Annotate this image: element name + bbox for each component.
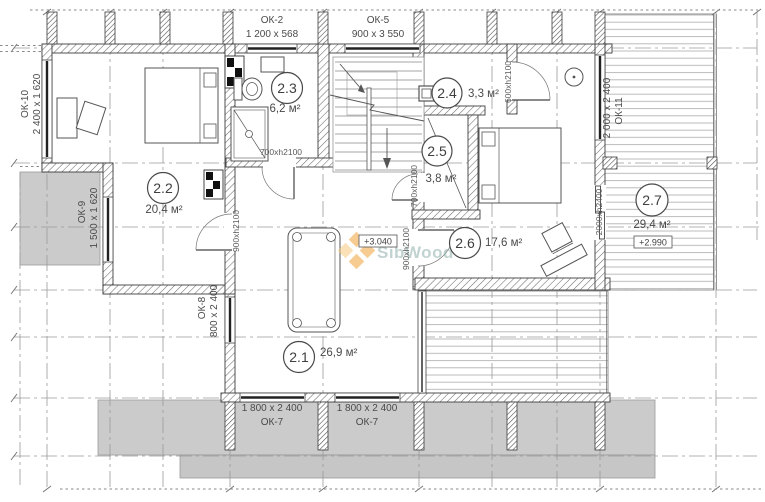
toilet <box>234 78 262 100</box>
label-ok2-size: 1 200 x 568 <box>246 29 299 40</box>
label-ok9-size: 1 500 x 1 620 <box>89 187 100 248</box>
label-ok5-name: ОК-5 <box>367 15 390 26</box>
room-2-6-area: 17,6 м² <box>485 237 522 249</box>
room-2-7: 2.7 29,4 м² <box>633 184 670 231</box>
label-ok8-size: 800 x 2 400 <box>209 284 220 337</box>
window-ok2 <box>247 44 297 53</box>
window-ok10 <box>42 60 52 158</box>
label-ok5-size: 900 x 3 550 <box>352 29 405 40</box>
terrace-top-right <box>602 14 714 290</box>
floor-plan-drawing: SibWood 2.1 26,9 м² 2.2 20,4 м² 2.3 6,2 … <box>0 0 765 502</box>
desk-room22 <box>57 98 106 138</box>
label-ok10-name: ОК-10 <box>20 90 31 118</box>
label-ok11-size: 2 000 x 2 400 <box>602 77 613 138</box>
room-2-5: 2.5 3,8 м² <box>422 136 457 185</box>
label-ok7b-size: 1 800 x 2 400 <box>337 403 398 414</box>
svg-text:2.2: 2.2 <box>153 180 173 196</box>
label-door-room24: 600xh2100 <box>503 61 513 103</box>
svg-text:2.4: 2.4 <box>437 85 457 101</box>
svg-text:2.3: 2.3 <box>277 80 297 96</box>
elevation-terrace: +2.990 <box>639 238 667 248</box>
door-bathroom <box>262 157 296 199</box>
elevation-hall: +3.040 <box>364 237 392 247</box>
label-ok7b-name: ОК-7 <box>356 417 379 428</box>
room-2-2: 2.2 20,4 м² <box>145 173 182 217</box>
door-room22 <box>196 213 236 251</box>
stair-handrail <box>367 88 371 170</box>
room-2-4-area: 3,3 м² <box>468 88 499 100</box>
label-ok8-name: ОК-8 <box>197 296 208 319</box>
roof-left <box>20 172 100 265</box>
wall-room26-bottom <box>415 278 610 290</box>
table-room21 <box>288 228 340 332</box>
window-ok8 <box>225 297 235 343</box>
label-ok2-name: ОК-2 <box>261 15 284 26</box>
terrace-bottom-right <box>421 291 608 394</box>
window-ok7-left <box>240 393 305 402</box>
wall-left-step <box>42 163 113 172</box>
room-2-1: 2.1 26,9 м² <box>284 342 358 373</box>
wall-closet-bottom <box>412 210 480 219</box>
svg-text:2.7: 2.7 <box>642 192 662 208</box>
chair-room22 <box>76 101 106 134</box>
bath-cabinet <box>261 57 284 72</box>
label-ok7a-size: 1 800 x 2 400 <box>242 403 303 414</box>
room-2-7-area: 29,4 м² <box>633 219 670 231</box>
svg-text:2.1: 2.1 <box>289 349 309 365</box>
room-2-3-area: 6,2 м² <box>270 103 301 115</box>
label-door-closet: 700xh2100 <box>409 165 419 207</box>
wall-room24-right-a <box>507 44 517 62</box>
bed-room22 <box>145 68 218 143</box>
floor-plan-page: SibWood 2.1 26,9 м² 2.2 20,4 м² 2.3 6,2 … <box>0 0 765 502</box>
window-ok7-right <box>335 393 400 402</box>
room-2-6: 2.6 17,6 м² <box>450 228 523 259</box>
desk-room26 <box>528 219 587 276</box>
room-2-5-area: 3,8 м² <box>426 173 457 185</box>
label-door-room26: 900xh2100 <box>401 228 411 270</box>
label-ok11-name: ОК-11 <box>614 97 625 125</box>
window-french-terrace <box>418 291 426 393</box>
stool-fixture <box>565 68 583 86</box>
svg-text:2.6: 2.6 <box>455 235 475 251</box>
bed-room26 <box>479 128 561 203</box>
room-2-1-area: 26,9 м² <box>320 347 357 359</box>
label-door-bathroom: 700xh2100 <box>260 147 302 157</box>
room-2-3: 2.3 6,2 м² <box>270 73 303 116</box>
svg-text:2.5: 2.5 <box>427 143 447 159</box>
room-2-2-area: 20,4 м² <box>145 204 182 216</box>
window-ok9 <box>103 197 113 262</box>
label-ok9-name: ОК-9 <box>77 200 88 223</box>
label-door-terrace: 2000xh2400 <box>594 188 604 235</box>
staircase <box>330 57 424 172</box>
room-2-4: 2.4 3,3 м² <box>432 78 499 108</box>
wall-bath-right <box>318 44 329 167</box>
window-ok5 <box>345 44 420 53</box>
label-ok7a-name: ОК-7 <box>261 417 284 428</box>
label-door-room22: 900xh2100 <box>231 210 241 252</box>
wall-closet-right <box>468 115 478 219</box>
label-ok10-size: 2 400 x 1 620 <box>32 73 43 134</box>
roof-bottom-lower <box>180 455 655 478</box>
